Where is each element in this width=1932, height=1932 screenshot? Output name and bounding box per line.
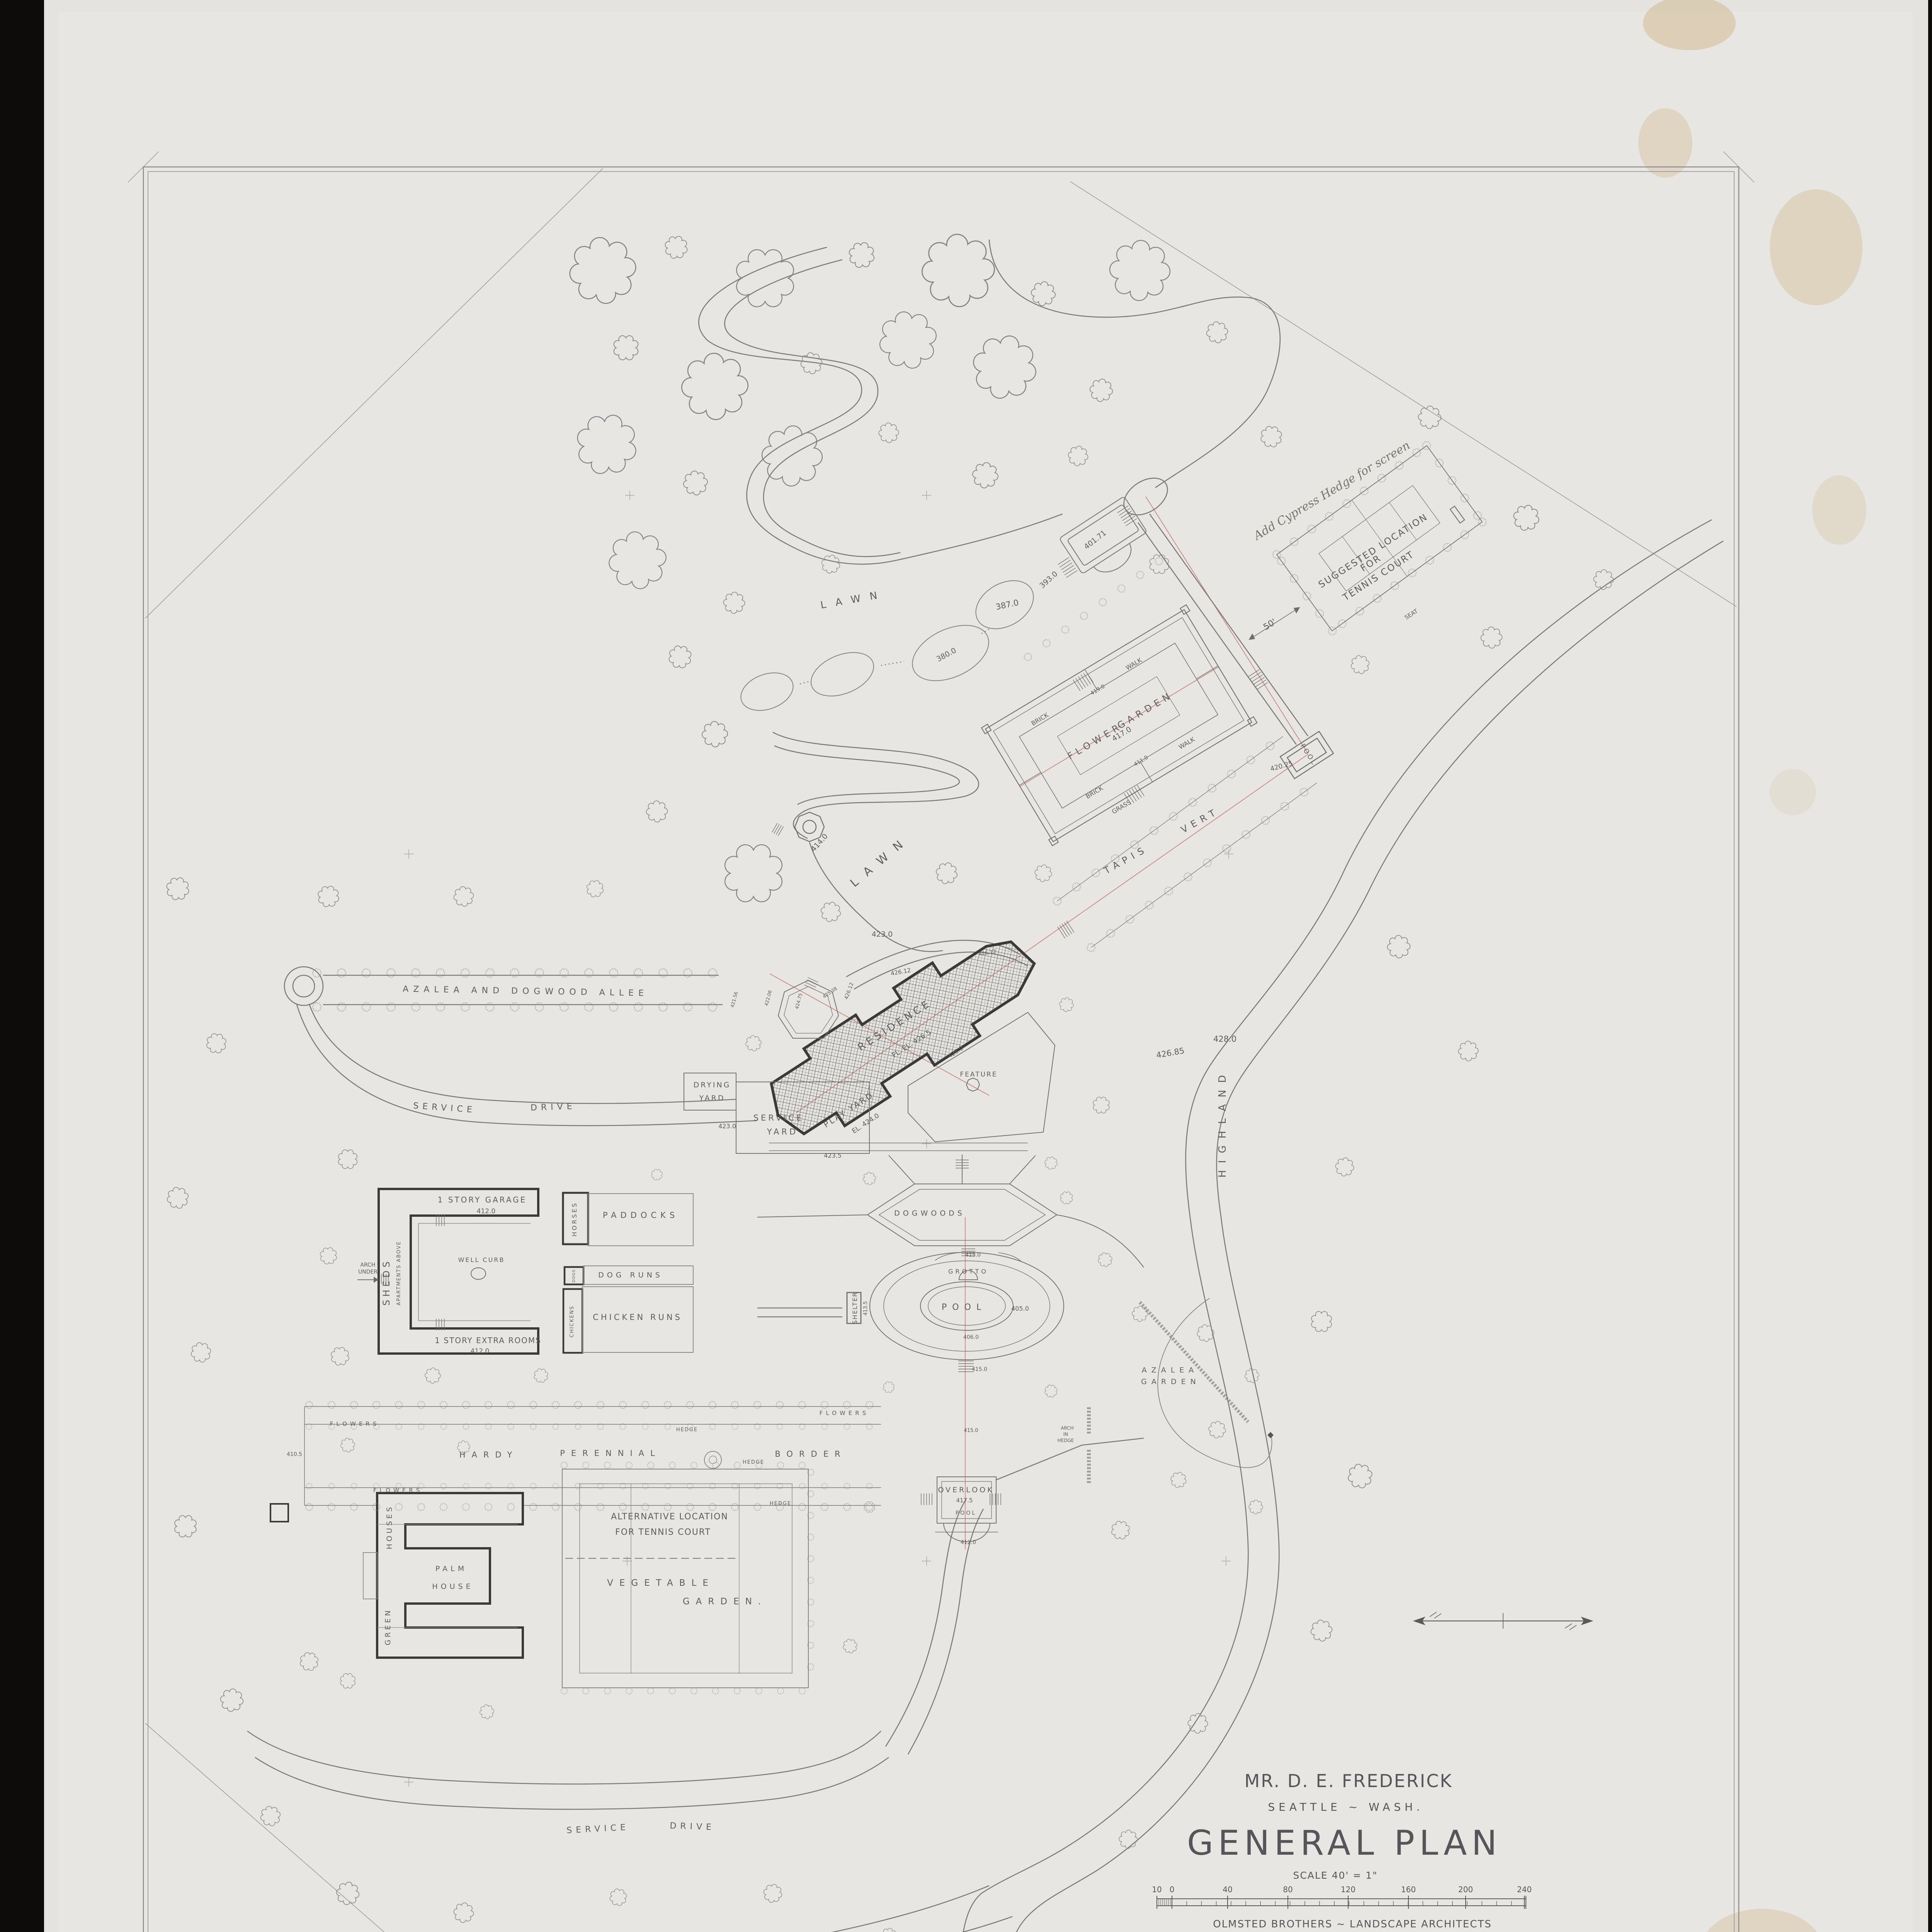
plan-label-svc2b: DRIVE [670, 1821, 715, 1832]
plan-label-alt2: FOR TENNIS COURT [615, 1527, 711, 1537]
plan-label-wellcurb: WELL CURB [458, 1256, 505, 1264]
plan-label-svcy2: YARD [767, 1127, 798, 1136]
plan-label-hedgeB: HEDGE [770, 1501, 791, 1507]
plan-label-chickens: CHICKENS [569, 1306, 575, 1337]
plan-label-archh3: HEDGE [1058, 1438, 1074, 1443]
plan-label-horses: HORSES [571, 1202, 578, 1236]
plan-label-veg1: VEGETABLE [607, 1578, 714, 1588]
plan-label-chickenruns: CHICKEN RUNS [593, 1313, 682, 1322]
plan-label-hedgeA: HEDGE [676, 1427, 698, 1433]
plan-label-drying1: DRYING [694, 1081, 731, 1089]
scale-tick-200: 200 [1458, 1885, 1473, 1894]
plan-label-shelter1: SHELTER [851, 1292, 859, 1324]
plan-label-perennial: PERENNIAL [560, 1449, 661, 1458]
plan-label-palm1: PALM [435, 1565, 467, 1573]
title-plan-name: GENERAL PLAN [1187, 1823, 1502, 1863]
plan-label-dogs: DOGS [572, 1269, 576, 1282]
plan-label-svcy1: SERVICE [753, 1113, 804, 1122]
plan-label-poolc: POOL [942, 1303, 986, 1312]
plan-label-e423a: 423.0 [872, 930, 893, 939]
plan-label-e406: 406.0 [963, 1334, 979, 1340]
scale-tick-40: 40 [1223, 1885, 1232, 1894]
plan-label-azalea2: GARDEN [1141, 1378, 1201, 1386]
plan-label-arch1: ARCH [361, 1262, 376, 1268]
plan-label-alt1: ALTERNATIVE LOCATION [611, 1512, 728, 1522]
scale-tick-240: 240 [1517, 1885, 1532, 1894]
plan-label-e415t: 415.0 [965, 1252, 981, 1258]
plan-label-e423b: 423.0 [718, 1122, 736, 1130]
scanned-plan-sheet: { "title_block": { "client": "MR. D. E. … [0, 0, 1932, 1932]
title-location: SEATTLE ~ WASH. [1268, 1801, 1423, 1813]
scale-tick-0: 0 [1170, 1885, 1175, 1894]
scale-tick-120: 120 [1341, 1885, 1355, 1894]
plan-label-poolo: POOL [956, 1510, 976, 1516]
plan-label-veg2: GARDEN. [683, 1597, 767, 1607]
title-firm: OLMSTED BROTHERS ~ LANDSCAPE ARCHITECTS [1213, 1918, 1492, 1930]
plan-label-flowersN: FLOWERS [330, 1420, 380, 1427]
plan-label-hedgeC: HEDGE [743, 1459, 764, 1465]
plan-label-svc1b: DRIVE [531, 1102, 576, 1113]
plan-label-drying2: YARD [699, 1094, 725, 1102]
plan-label-ovl2: 417.5 [956, 1497, 973, 1504]
plan-label-arch2: UNDER [358, 1269, 378, 1275]
plan-label-archh1: ARCH [1061, 1425, 1073, 1431]
plan-label-e4235: 423.5 [824, 1152, 842, 1159]
plan-label-houses: HOUSES [385, 1505, 394, 1549]
plan-label-e428: 428.0 [1213, 1034, 1236, 1044]
plan-label-border: BORDER [775, 1449, 846, 1459]
plan-label-dogwoods: DOGWOODS [894, 1209, 965, 1218]
plan-label-dogruns: DOG RUNS [598, 1271, 663, 1279]
plan-label-hardy: HARDY [459, 1450, 519, 1459]
plan-label-extra1: 1 STORY EXTRA ROOMS [435, 1336, 541, 1345]
plan-label-ovl1: OVERLOOK [938, 1486, 994, 1494]
plan-label-azalea1: AZALEA [1142, 1366, 1199, 1374]
plan-label-e415o: 415.0 [964, 1428, 978, 1434]
plan-label-garage1: 1 STORY GARAGE [438, 1195, 527, 1204]
plan-label-grotto: GROTTO [948, 1268, 988, 1275]
plan-label-shelter2: 413.5 [863, 1301, 869, 1315]
plan-label-garage2: 412.0 [477, 1207, 496, 1215]
title-scale: SCALE 40' = 1" [1293, 1870, 1378, 1881]
plan-label-extra2: 412.0 [471, 1347, 490, 1355]
plan-label-e4105: 410.5 [287, 1451, 302, 1458]
plan-label-paddocks: PADDOCKS [603, 1211, 679, 1220]
scale-tick-160: 160 [1401, 1885, 1416, 1894]
plan-label-e405: 405.0 [1011, 1305, 1029, 1312]
plan-label-archh2: IN [1063, 1432, 1068, 1437]
plan-label-feature: FEATURE [960, 1071, 997, 1078]
scale-tick-10: 10 [1152, 1885, 1162, 1894]
plan-label-palm2: HOUSE [432, 1582, 473, 1591]
plan-label-e412o: 412.0 [961, 1539, 976, 1546]
title-client: MR. D. E. FREDERICK [1244, 1770, 1452, 1791]
plan-drawing: INCHES LAWNLAWN387.0380.0393.0401.71414.… [0, 0, 1932, 1932]
plan-label-flowersE: FLOWERS [820, 1410, 869, 1417]
scale-tick-80: 80 [1283, 1885, 1293, 1894]
plan-label-highland: HIGHLAND [1217, 1068, 1228, 1177]
plan-label-flowersS: FLOWERS [373, 1487, 423, 1494]
plan-label-apartments: APARTMENTS ABOVE [396, 1241, 402, 1306]
plan-label-sheds: SHEDS [381, 1259, 392, 1306]
plan-label-green: GREEN [384, 1608, 392, 1645]
plan-label-e415s: 415.0 [972, 1366, 987, 1372]
